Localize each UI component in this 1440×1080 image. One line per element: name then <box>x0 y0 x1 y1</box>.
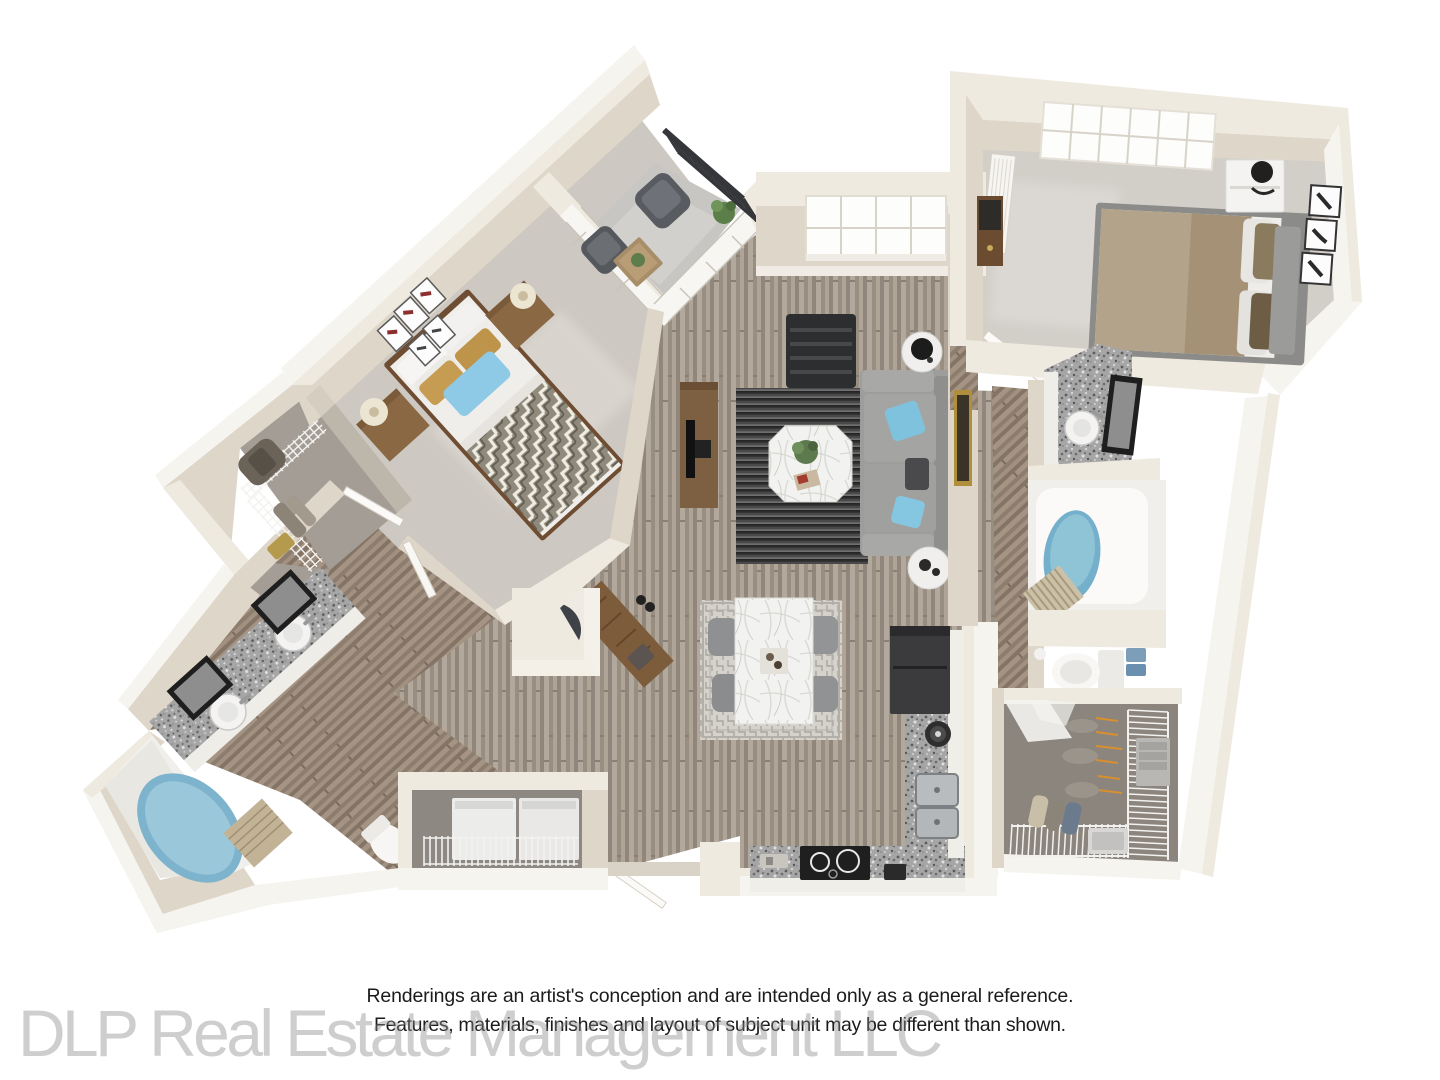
svg-text:DLP Real Estate Management LLC: DLP Real Estate Management LLC <box>18 996 943 1070</box>
